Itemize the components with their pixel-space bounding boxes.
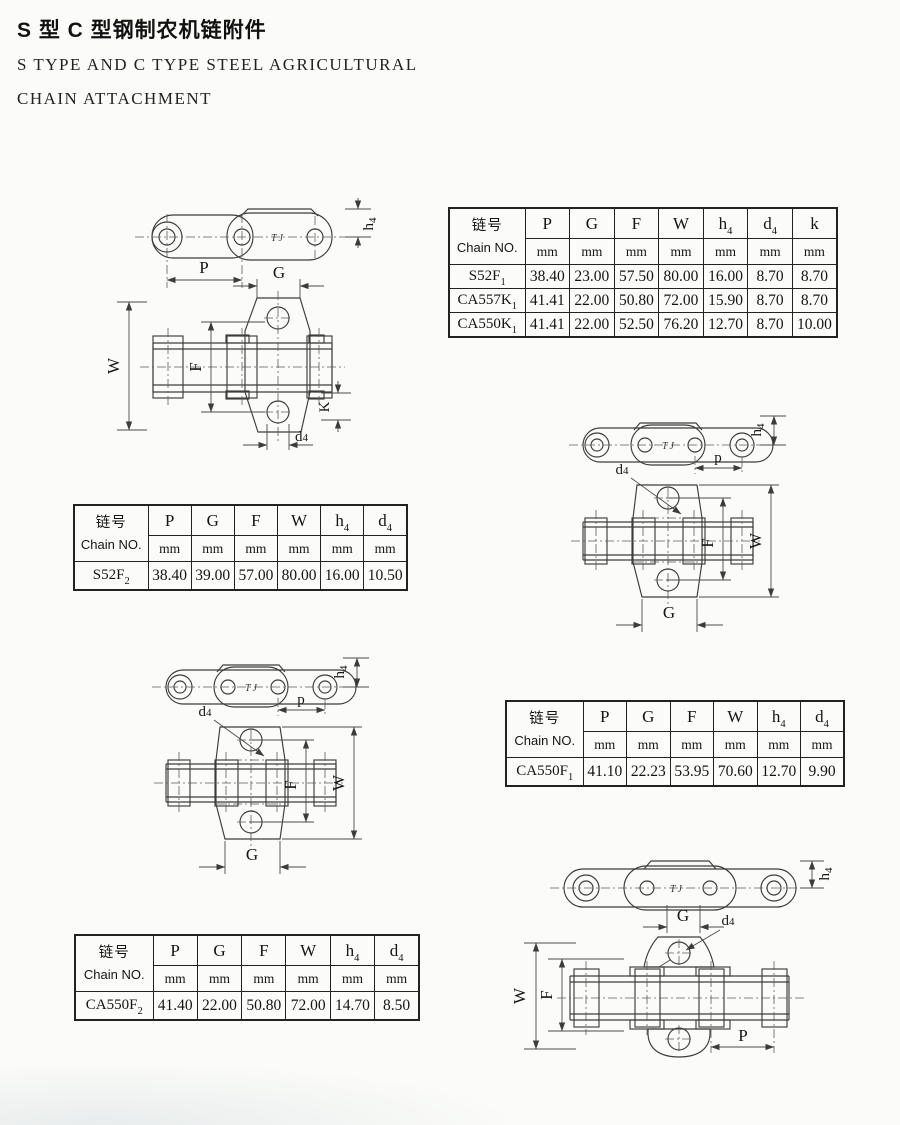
dim-label-h4: h4	[332, 665, 350, 679]
spec-table-ca550f2: 链号 Chain NO. P G F W h4 d4 mm mm mm mm m…	[74, 934, 420, 1021]
chain-no-cell: S52F2	[74, 562, 148, 591]
value-cell: 22.23	[627, 758, 671, 787]
dim-label-d4: d4	[616, 462, 630, 478]
value-cell: 10.50	[364, 562, 407, 591]
drawing-c-type-attachment: TJ h4 G d4 W F	[512, 853, 872, 1068]
spec-table-s52f2: 链号 Chain NO. P G F W h4 d4 mm mm mm mm m…	[73, 504, 408, 591]
dim-label-W: W	[510, 987, 529, 1004]
value-cell: 50.80	[242, 992, 286, 1021]
dim-label-W: W	[329, 774, 348, 791]
table-row: CA557K1 41.41 22.00 50.80 72.00 15.90 8.…	[449, 289, 837, 313]
dim-label-G: G	[273, 263, 285, 282]
value-cell: 16.00	[703, 265, 748, 289]
value-cell: 8.70	[748, 313, 793, 338]
value-cell: 41.40	[153, 992, 197, 1021]
value-cell: 22.00	[197, 992, 241, 1021]
dim-label-G: G	[663, 603, 675, 622]
chain-no-cell: S52F1	[449, 265, 525, 289]
value-cell: 72.00	[286, 992, 330, 1021]
unit-cell: mm	[703, 239, 748, 265]
col-header: d4	[748, 208, 793, 239]
value-cell: 8.50	[375, 992, 419, 1021]
value-cell: 38.40	[525, 265, 570, 289]
spec-table-s52f1-group: 链号 Chain NO. P G F W h4 d4 k mm mm mm mm…	[448, 207, 838, 338]
value-cell: 12.70	[703, 313, 748, 338]
drawing-f-type-attachment-1: TJ p h4 d4 F W	[555, 408, 795, 638]
tj-mark: TJ	[662, 441, 676, 452]
value-cell: 9.90	[801, 758, 845, 787]
col-header: G	[197, 935, 241, 966]
chain-no-header: 链号 Chain NO.	[75, 935, 153, 992]
value-cell: 14.70	[330, 992, 374, 1021]
col-header: d4	[375, 935, 419, 966]
col-header: W	[277, 505, 320, 536]
value-cell: 80.00	[659, 265, 704, 289]
unit-cell: mm	[364, 536, 407, 562]
col-header: G	[191, 505, 234, 536]
page-title-en-line2: CHAIN ATTACHMENT	[17, 89, 212, 109]
chain-no-cell: CA557K1	[449, 289, 525, 313]
value-cell: 41.10	[583, 758, 627, 787]
value-cell: 12.70	[757, 758, 801, 787]
col-header: P	[148, 505, 191, 536]
unit-cell: mm	[801, 732, 845, 758]
value-cell: 41.41	[525, 289, 570, 313]
value-cell: 72.00	[659, 289, 704, 313]
tj-mark: TJ	[271, 233, 285, 244]
dim-label-d4: d4	[295, 429, 309, 445]
unit-cell: mm	[714, 732, 758, 758]
col-header: P	[153, 935, 197, 966]
col-header: F	[242, 935, 286, 966]
dim-label-F: F	[281, 780, 300, 789]
tj-mark: TJ	[245, 683, 259, 694]
chain-no-header: 链号 Chain NO.	[506, 701, 583, 758]
dim-label-W: W	[104, 357, 123, 374]
dim-label-F: F	[186, 362, 205, 371]
unit-cell: mm	[614, 239, 659, 265]
unit-cell: mm	[792, 239, 837, 265]
spec-table-ca550f1: 链号 Chain NO. P G F W h4 d4 mm mm mm mm m…	[505, 700, 845, 787]
col-header: P	[583, 701, 627, 732]
value-cell: 22.00	[570, 313, 615, 338]
dim-label-p: p	[297, 692, 305, 708]
dim-label-d4: d4	[722, 913, 736, 929]
drawing-f-type-attachment-2: TJ p h4 d4 F W	[138, 650, 378, 880]
unit-cell: mm	[191, 536, 234, 562]
unit-cell: mm	[234, 536, 277, 562]
unit-cell: mm	[583, 732, 627, 758]
value-cell: 52.50	[614, 313, 659, 338]
value-cell: 23.00	[570, 265, 615, 289]
table-row: S52F2 38.40 39.00 57.00 80.00 16.00 10.5…	[74, 562, 407, 591]
chain-no-cell: CA550K1	[449, 313, 525, 338]
unit-cell: mm	[627, 732, 671, 758]
chain-no-cell: CA550F1	[506, 758, 583, 787]
unit-cell: mm	[286, 966, 330, 992]
unit-cell: mm	[659, 239, 704, 265]
dim-label-d4: d4	[199, 704, 213, 720]
dim-label-G: G	[246, 845, 258, 864]
dim-label-F: F	[698, 538, 717, 547]
value-cell: 80.00	[277, 562, 320, 591]
unit-cell: mm	[277, 536, 320, 562]
value-cell: 22.00	[570, 289, 615, 313]
unit-cell: mm	[242, 966, 286, 992]
value-cell: 8.70	[792, 265, 837, 289]
dim-label-p: p	[714, 450, 722, 466]
dim-label-P: P	[738, 1026, 747, 1045]
col-header: W	[714, 701, 758, 732]
chain-no-cell: CA550F2	[75, 992, 153, 1021]
col-header: h4	[321, 505, 364, 536]
unit-cell: mm	[375, 966, 419, 992]
col-header: h4	[703, 208, 748, 239]
unit-cell: mm	[330, 966, 374, 992]
col-header: G	[627, 701, 671, 732]
dim-label-W: W	[746, 532, 765, 549]
dim-label-F: F	[537, 990, 556, 999]
tj-mark: TJ	[670, 884, 684, 895]
unit-cell: mm	[757, 732, 801, 758]
table-row: S52F1 38.40 23.00 57.50 80.00 16.00 8.70…	[449, 265, 837, 289]
col-header: W	[286, 935, 330, 966]
chain-no-header: 链号 Chain NO.	[449, 208, 525, 265]
value-cell: 16.00	[321, 562, 364, 591]
dim-label-G: G	[677, 906, 689, 925]
dim-label-h4: h4	[749, 423, 767, 437]
value-cell: 76.20	[659, 313, 704, 338]
unit-cell: mm	[153, 966, 197, 992]
col-header: h4	[757, 701, 801, 732]
table-row: CA550F2 41.40 22.00 50.80 72.00 14.70 8.…	[75, 992, 419, 1021]
value-cell: 8.70	[748, 265, 793, 289]
value-cell: 10.00	[792, 313, 837, 338]
col-header: G	[570, 208, 615, 239]
value-cell: 8.70	[792, 289, 837, 313]
scan-smudge	[0, 1055, 560, 1125]
unit-cell: mm	[570, 239, 615, 265]
col-header: F	[670, 701, 714, 732]
value-cell: 41.41	[525, 313, 570, 338]
unit-cell: mm	[321, 536, 364, 562]
col-header: h4	[330, 935, 374, 966]
col-header: P	[525, 208, 570, 239]
col-header: k	[792, 208, 837, 239]
value-cell: 15.90	[703, 289, 748, 313]
table-row: CA550K1 41.41 22.00 52.50 76.20 12.70 8.…	[449, 313, 837, 338]
dim-label-h4: h4	[361, 217, 379, 231]
page-title-en-line1: S TYPE AND C TYPE STEEL AGRICULTURAL	[17, 55, 418, 75]
col-header: F	[234, 505, 277, 536]
chain-no-header: 链号 Chain NO.	[74, 505, 148, 562]
unit-cell: mm	[197, 966, 241, 992]
col-header: d4	[364, 505, 407, 536]
col-header: W	[659, 208, 704, 239]
value-cell: 50.80	[614, 289, 659, 313]
unit-cell: mm	[525, 239, 570, 265]
col-header: F	[614, 208, 659, 239]
value-cell: 39.00	[191, 562, 234, 591]
page-title-zh: S 型 C 型钢制农机链附件	[17, 14, 267, 44]
dim-label-K: K	[317, 401, 333, 412]
dim-label-h4: h4	[817, 867, 835, 881]
value-cell: 57.00	[234, 562, 277, 591]
value-cell: 38.40	[148, 562, 191, 591]
unit-cell: mm	[148, 536, 191, 562]
unit-cell: mm	[670, 732, 714, 758]
dim-label-P: P	[199, 258, 208, 277]
value-cell: 8.70	[748, 289, 793, 313]
unit-cell: mm	[748, 239, 793, 265]
catalog-page: S 型 C 型钢制农机链附件 S TYPE AND C TYPE STEEL A…	[0, 0, 900, 1125]
value-cell: 53.95	[670, 758, 714, 787]
table-row: CA550F1 41.10 22.23 53.95 70.60 12.70 9.…	[506, 758, 844, 787]
drawing-k-type-attachment: TJ P h4 G W	[105, 196, 385, 466]
col-header: d4	[801, 701, 845, 732]
value-cell: 70.60	[714, 758, 758, 787]
value-cell: 57.50	[614, 265, 659, 289]
